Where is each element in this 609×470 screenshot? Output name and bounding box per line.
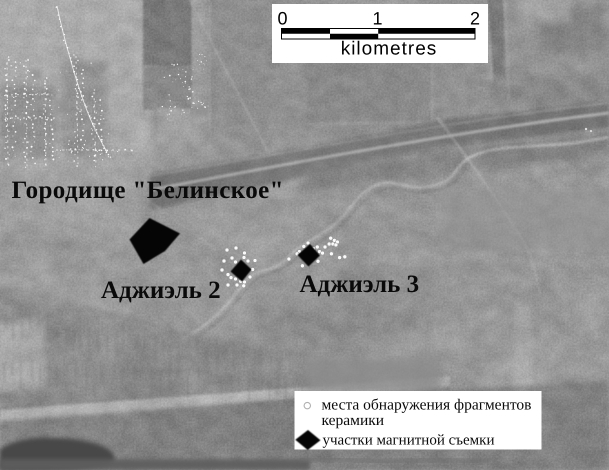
svg-text:места обнаружения фрагментов: места обнаружения фрагментов	[322, 397, 532, 414]
svg-text:0: 0	[277, 9, 287, 29]
svg-text:участки магнитной съемки: участки магнитной съемки	[323, 433, 495, 449]
svg-text:Городище "Белинское": Городище "Белинское"	[12, 177, 284, 204]
svg-text:Аджиэль 3: Аджиэль 3	[300, 271, 420, 298]
svg-text:1: 1	[372, 9, 382, 29]
svg-text:керамики: керамики	[322, 412, 385, 429]
svg-text:Аджиэль 2: Аджиэль 2	[101, 277, 221, 304]
svg-text:2: 2	[470, 9, 480, 29]
svg-text:kilometres: kilometres	[341, 39, 438, 60]
